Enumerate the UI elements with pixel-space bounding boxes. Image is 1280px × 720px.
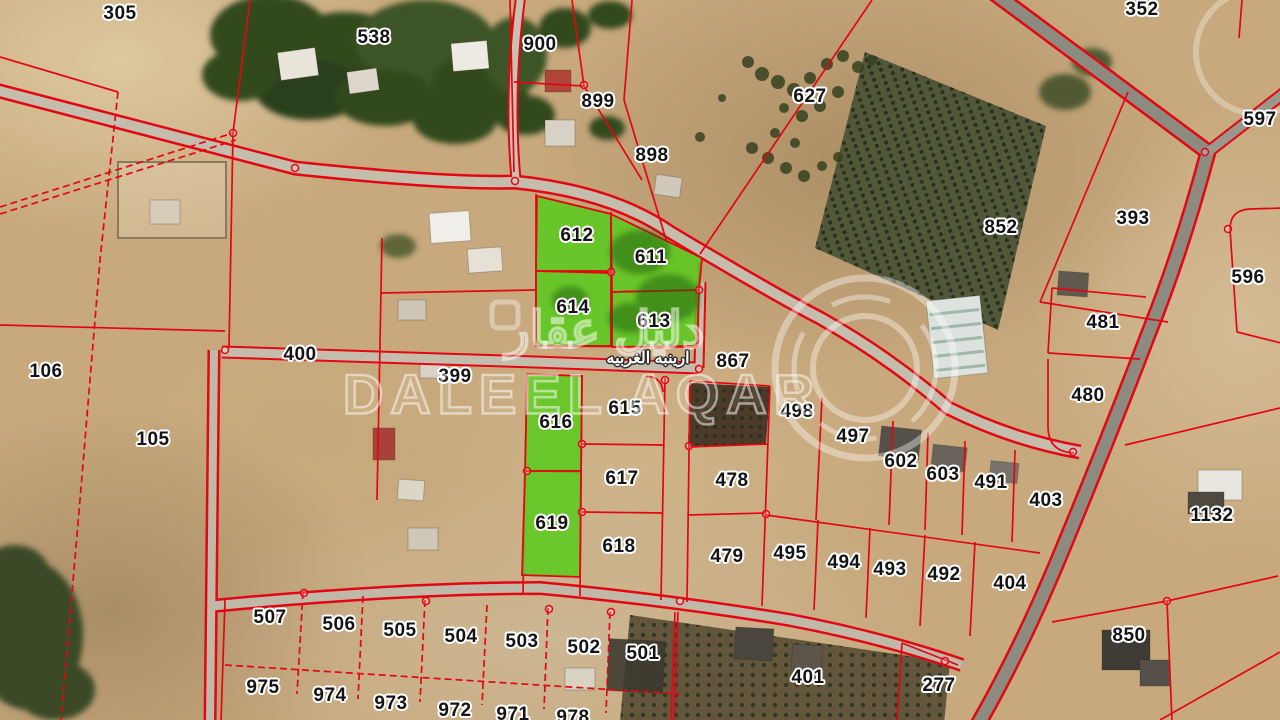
parcel-label-493: 493 [873, 559, 906, 581]
parcel-label-497: 497 [836, 426, 869, 448]
parcel-label-501: 501 [626, 643, 659, 665]
parcel-label-400: 400 [283, 344, 316, 366]
parcel-label-401: 401 [791, 667, 824, 689]
parcel-label-538: 538 [357, 27, 390, 49]
parcel-label-481: 481 [1086, 312, 1119, 334]
parcel-label-305: 305 [103, 3, 136, 25]
parcel-label-492: 492 [927, 564, 960, 586]
parcel-label-495: 495 [773, 543, 806, 565]
parcel-label-899: 899 [581, 91, 614, 113]
parcel-label-352: 352 [1125, 0, 1158, 21]
parcel-label-617: 617 [605, 468, 638, 490]
parcel-label-867: 867 [716, 351, 749, 373]
parcel-label-611: 611 [635, 247, 667, 269]
parcel-label-974: 974 [313, 685, 346, 707]
parcel-label-613: 613 [637, 311, 670, 333]
parcel-label-399: 399 [438, 366, 471, 388]
parcel-label-627: 627 [793, 86, 826, 108]
parcel-label-597: 597 [1243, 109, 1276, 131]
parcel-label-615: 615 [608, 398, 641, 420]
parcel-label-504: 504 [444, 626, 477, 648]
parcel-label-618: 618 [602, 536, 635, 558]
parcel-label-480: 480 [1071, 385, 1104, 407]
parcel-label-505: 505 [383, 620, 416, 642]
parcel-label-506: 506 [322, 614, 355, 636]
parcel-label-105: 105 [136, 429, 169, 451]
parcel-label-614: 614 [556, 297, 589, 319]
parcel-label-479: 479 [710, 546, 743, 568]
parcel-label-619: 619 [535, 513, 568, 535]
parcel-label-898: 898 [635, 145, 668, 167]
parcel-label-494: 494 [827, 552, 860, 574]
parcel-label-106: 106 [29, 361, 62, 383]
parcel-label-403: 403 [1029, 490, 1062, 512]
parcel-label-975: 975 [246, 677, 279, 699]
parcel-label-973: 973 [374, 693, 407, 715]
street-name-label: ارينبه الغربيه [606, 348, 689, 368]
parcel-label-503: 503 [505, 631, 538, 653]
parcel-label-850: 850 [1112, 625, 1145, 647]
parcel-label-277: 277 [922, 675, 955, 697]
parcel-label-852: 852 [984, 217, 1017, 239]
parcel-label-602: 602 [884, 451, 917, 473]
parcel-label-507: 507 [253, 607, 286, 629]
parcel-label-478: 478 [715, 470, 748, 492]
parcel-label-491: 491 [974, 472, 1007, 494]
parcel-label-596: 596 [1231, 267, 1264, 289]
satellite-map[interactable]: 3055389008998983526275973938525964816126… [0, 0, 1280, 720]
parcel-label-498: 498 [780, 401, 813, 423]
parcel-label-900: 900 [523, 34, 556, 56]
parcel-label-603: 603 [926, 464, 959, 486]
parcel-label-978: 978 [556, 707, 589, 720]
parcel-label-393: 393 [1116, 208, 1149, 230]
parcel-label-616: 616 [539, 412, 572, 434]
parcel-label-971: 971 [496, 704, 529, 720]
parcel-label-972: 972 [438, 700, 471, 720]
parcel-label-502: 502 [567, 637, 600, 659]
parcel-label-1132: 1132 [1190, 505, 1233, 527]
parcel-label-404: 404 [993, 573, 1026, 595]
parcel-label-612: 612 [560, 225, 593, 247]
